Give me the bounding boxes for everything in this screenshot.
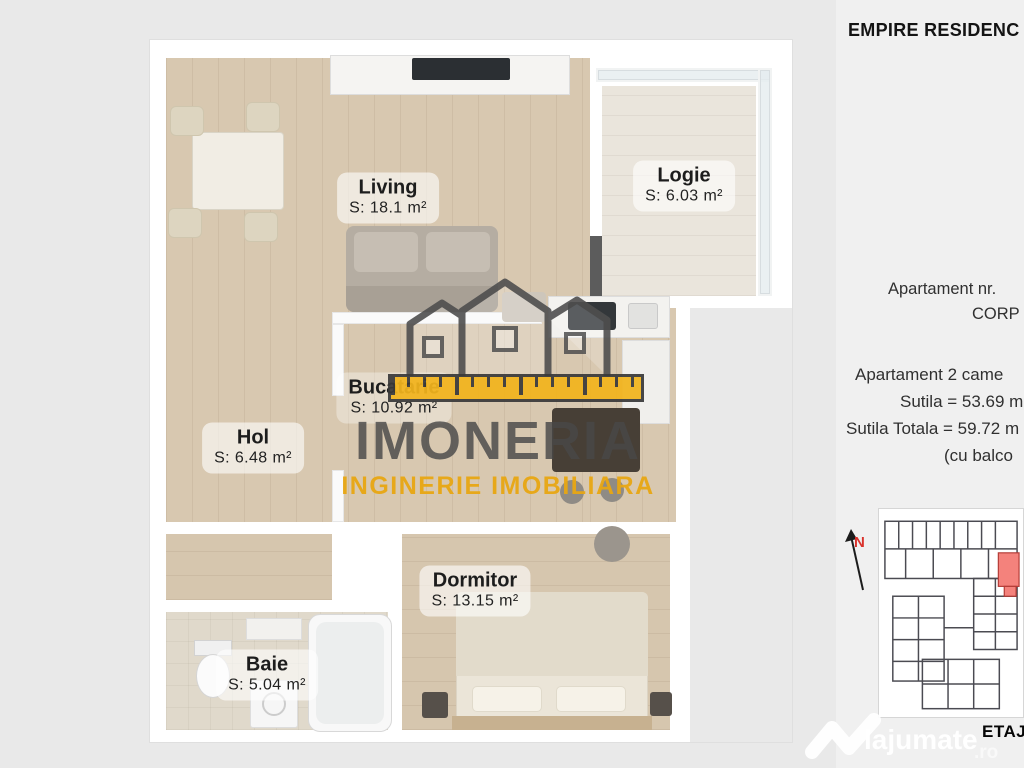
imoneria-tagline-text: INGINERIE IMOBILIARA — [326, 472, 670, 501]
dining-chair — [246, 102, 280, 132]
room-name: Hol — [214, 427, 292, 449]
room-label-hol: Hol S: 6.48 m² — [202, 423, 304, 474]
floor-label: ETAJ — [982, 722, 1024, 742]
dining-chair — [168, 208, 202, 238]
pillow — [472, 686, 542, 712]
room-area: S: 13.15 m² — [431, 593, 518, 611]
building-siteplan-thumbnail — [878, 508, 1024, 718]
sofa-cushion — [354, 232, 418, 272]
bed-headboard — [452, 716, 652, 730]
detail-line-balcony-note: (cu balco — [944, 446, 1013, 466]
lajumate-watermark-text: lajumate — [864, 724, 978, 756]
dining-chair — [170, 106, 204, 136]
room-area: S: 5.04 m² — [228, 677, 306, 695]
room-name: Dormitor — [431, 570, 518, 592]
room-name: Logie — [645, 165, 723, 187]
room-area: S: 6.48 m² — [214, 450, 292, 468]
imoneria-houses-logo-icon — [402, 276, 624, 380]
background-cutout — [690, 308, 792, 742]
sofa-cushion — [426, 232, 490, 272]
bathroom-vanity — [246, 618, 302, 640]
room-name: Baie — [228, 654, 306, 676]
pouf — [594, 526, 630, 562]
room-label-logie: Logie S: 6.03 m² — [633, 161, 735, 212]
loggia-glass-rail — [596, 68, 772, 82]
listing-image: Living S: 18.1 m² Logie S: 6.03 m² Bucat… — [0, 0, 1024, 768]
detail-line-usable-area: Sutila = 53.69 m — [900, 392, 1023, 412]
room-area: S: 18.1 m² — [349, 200, 427, 218]
apartment-number-line: Apartament nr. — [888, 280, 996, 299]
imoneria-brand-text: IMONERIA — [330, 414, 666, 468]
room-label-living: Living S: 18.1 m² — [337, 173, 439, 224]
loggia-glass-rail — [758, 68, 772, 296]
compass-north-icon: N — [842, 528, 872, 594]
lajumate-tld-text: .ro — [974, 742, 998, 764]
hall-floor — [166, 534, 332, 600]
room-label-dormitor: Dormitor S: 13.15 m² — [419, 566, 530, 617]
kitchen-sink — [628, 303, 658, 329]
compass-north-label: N — [854, 534, 865, 551]
room-name: Living — [349, 177, 427, 199]
detail-line-total-area: Sutila Totala = 59.72 m — [846, 419, 1019, 439]
imoneria-ruler-icon — [388, 374, 644, 402]
tv — [412, 58, 510, 80]
project-title: EMPIRE RESIDENC — [848, 20, 1020, 41]
room-area: S: 6.03 m² — [645, 188, 723, 206]
corp-line: CORP — [972, 305, 1020, 324]
detail-line-rooms: Apartament 2 came — [855, 365, 1003, 385]
dining-chair — [244, 212, 278, 242]
pillow — [556, 686, 626, 712]
nightstand — [650, 692, 672, 716]
bathtub-basin — [316, 622, 384, 724]
dining-table — [192, 132, 284, 210]
nightstand — [422, 692, 448, 718]
room-label-baie: Baie S: 5.04 m² — [216, 650, 318, 701]
